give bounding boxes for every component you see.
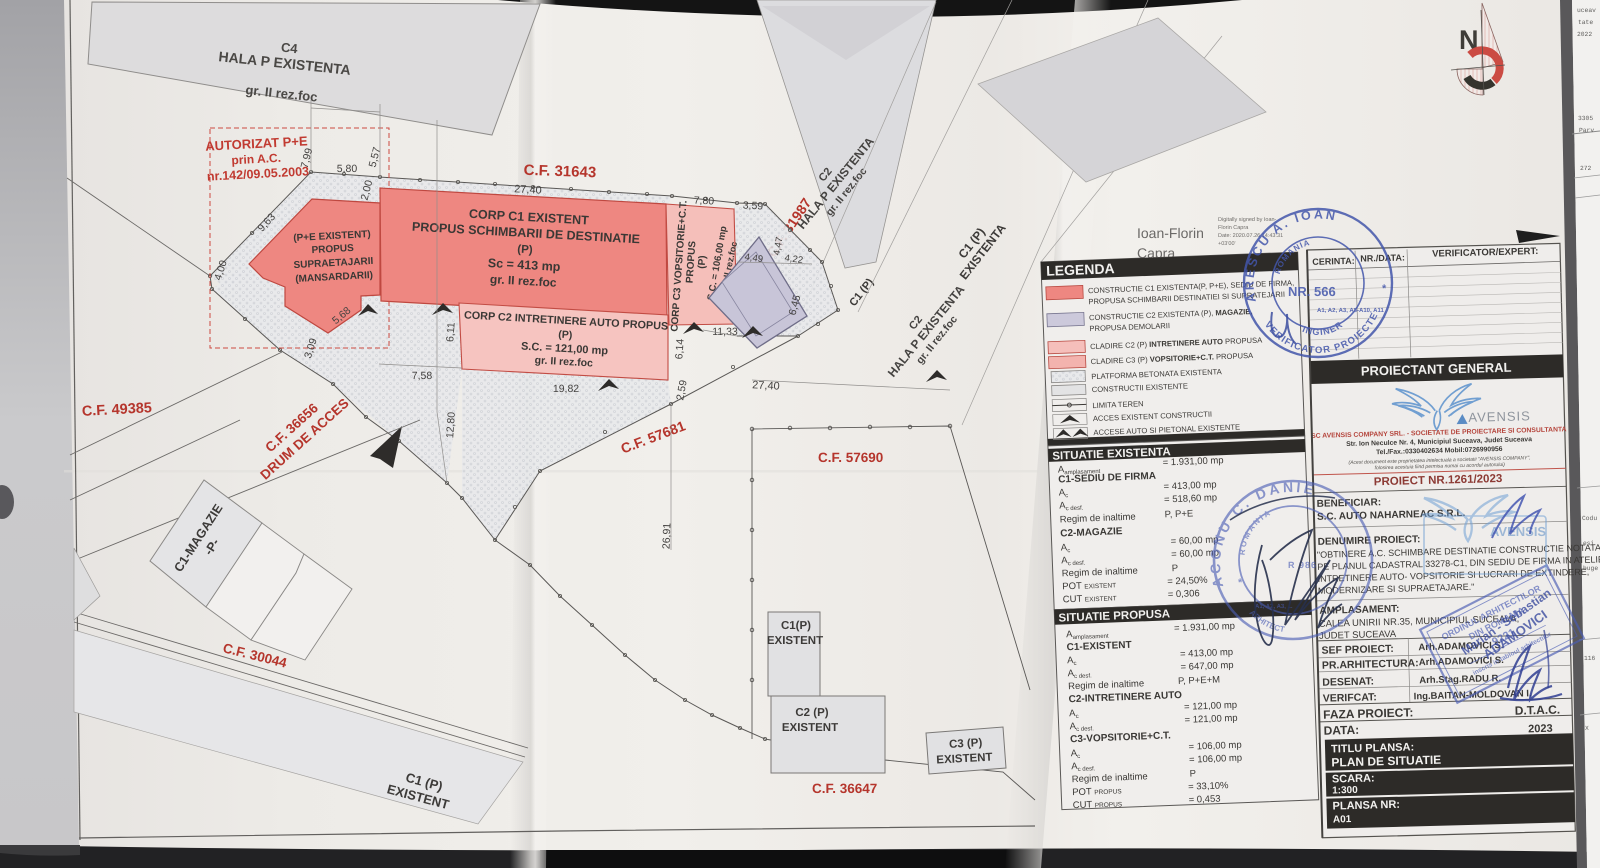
svg-text:= 413,00 mp: = 413,00 mp bbox=[1180, 647, 1233, 660]
svg-text:P: P bbox=[1172, 563, 1179, 574]
svg-text:A01: A01 bbox=[1333, 814, 1352, 825]
svg-text:C.F. 36647: C.F. 36647 bbox=[812, 781, 877, 796]
svg-text:(P): (P) bbox=[558, 329, 573, 342]
svg-text:*: * bbox=[1382, 283, 1387, 295]
svg-text:5,80: 5,80 bbox=[337, 163, 358, 175]
svg-text:PLAN DE SITUATIE: PLAN DE SITUATIE bbox=[1331, 753, 1441, 770]
svg-text:*: * bbox=[1238, 577, 1243, 589]
svg-text:EXISTENT: EXISTENT bbox=[767, 635, 823, 647]
svg-text:= 24,50%: = 24,50% bbox=[1167, 575, 1208, 588]
svg-text:7,80: 7,80 bbox=[693, 194, 714, 207]
svg-text:272: 272 bbox=[1580, 165, 1592, 172]
svg-text:7,58: 7,58 bbox=[412, 370, 433, 382]
svg-text:C3 (P): C3 (P) bbox=[949, 737, 983, 751]
svg-text:12,80: 12,80 bbox=[444, 411, 458, 438]
svg-text:1:300: 1:300 bbox=[1332, 785, 1358, 797]
svg-text:6,11: 6,11 bbox=[444, 322, 457, 343]
svg-text:DESENAT:: DESENAT: bbox=[1322, 675, 1374, 688]
svg-text:= 413,00 mp: = 413,00 mp bbox=[1163, 479, 1216, 492]
svg-text:AMPLASAMENT:: AMPLASAMENT: bbox=[1319, 604, 1399, 617]
svg-text:(P): (P) bbox=[517, 244, 533, 257]
svg-text:= 0,453: = 0,453 bbox=[1188, 794, 1220, 806]
svg-text:tate: tate bbox=[1578, 19, 1593, 26]
svg-text:27,40: 27,40 bbox=[514, 183, 542, 196]
svg-text:= 121,00 mp: = 121,00 mp bbox=[1184, 700, 1237, 713]
svg-text:SEF PROIECT:: SEF PROIECT: bbox=[1321, 643, 1394, 657]
svg-text:AVENSIS: AVENSIS bbox=[1468, 408, 1531, 425]
svg-text:= 106,00 mp: = 106,00 mp bbox=[1188, 740, 1241, 753]
svg-text:(P): (P) bbox=[697, 255, 709, 269]
svg-text:C1(P): C1(P) bbox=[781, 620, 811, 632]
svg-text:A1, A2, A3, A8-A10, A11: A1, A2, A3, A8-A10, A11 bbox=[1317, 307, 1384, 314]
svg-text:PLANSA NR:: PLANSA NR: bbox=[1332, 799, 1400, 813]
svg-text:A1, A2, A3, ...: A1, A2, A3, ... bbox=[1255, 603, 1293, 610]
svg-text:NR. 566: NR. 566 bbox=[1288, 284, 1336, 299]
svg-text:CERINTA:: CERINTA: bbox=[1312, 256, 1355, 267]
svg-text:= 121,00 mp: = 121,00 mp bbox=[1184, 713, 1237, 726]
svg-text:C.F. 31643: C.F. 31643 bbox=[523, 162, 596, 182]
svg-text:DATA:: DATA: bbox=[1323, 723, 1359, 738]
svg-text:P: P bbox=[1189, 768, 1196, 779]
svg-text:Parv: Parv bbox=[1579, 127, 1594, 134]
svg-text:VERIFCAT:: VERIFCAT: bbox=[1323, 691, 1377, 704]
svg-text:C4: C4 bbox=[280, 40, 299, 57]
svg-text:2022: 2022 bbox=[1577, 31, 1592, 38]
svg-text:= 1.931,00 mp: = 1.931,00 mp bbox=[1162, 455, 1223, 468]
svg-text:C2 (P): C2 (P) bbox=[795, 707, 828, 719]
svg-text:2023: 2023 bbox=[1528, 723, 1553, 736]
svg-text:= 106,00 mp: = 106,00 mp bbox=[1189, 753, 1242, 766]
svg-text:X: X bbox=[1585, 725, 1589, 732]
svg-text:NR./DATA:: NR./DATA: bbox=[1360, 252, 1405, 263]
svg-text:EXISTENT: EXISTENT bbox=[782, 722, 838, 734]
svg-text:SCARA:: SCARA: bbox=[1332, 772, 1375, 785]
svg-text:+03'00': +03'00' bbox=[1218, 241, 1236, 247]
svg-text:C.F. 57690: C.F. 57690 bbox=[818, 450, 883, 465]
svg-text:26,91: 26,91 bbox=[661, 523, 674, 550]
svg-text:Digitally signed by Ioan-: Digitally signed by Ioan- bbox=[1218, 217, 1277, 223]
svg-text:PROPUS: PROPUS bbox=[311, 243, 354, 256]
svg-text:3305: 3305 bbox=[1578, 115, 1593, 122]
svg-text:19,82: 19,82 bbox=[553, 383, 579, 395]
svg-text:P, P+E+M: P, P+E+M bbox=[1178, 674, 1221, 687]
svg-text:R 986: R 986 bbox=[1288, 560, 1317, 570]
svg-text:= 647,00 mp: = 647,00 mp bbox=[1180, 660, 1233, 673]
svg-text:Ioan-Florin: Ioan-Florin bbox=[1137, 225, 1204, 241]
svg-text:= 1.931,00 mp: = 1.931,00 mp bbox=[1174, 621, 1235, 634]
svg-text:Florin Capra: Florin Capra bbox=[1218, 225, 1249, 231]
svg-text:= 33,10%: = 33,10% bbox=[1188, 780, 1229, 793]
svg-text:uceav: uceav bbox=[1577, 7, 1596, 14]
svg-text:LEGENDA: LEGENDA bbox=[1046, 260, 1115, 279]
svg-text:Codu: Codu bbox=[1582, 515, 1597, 522]
svg-text:prin A.C.: prin A.C. bbox=[231, 151, 281, 168]
svg-text:= 0,306: = 0,306 bbox=[1168, 588, 1200, 600]
svg-text:P, P+E: P, P+E bbox=[1164, 508, 1193, 520]
svg-text:= 518,60 mp: = 518,60 mp bbox=[1164, 492, 1217, 505]
svg-text:3,59: 3,59 bbox=[742, 199, 763, 212]
svg-text:116: 116 bbox=[1584, 655, 1596, 662]
svg-text:6,14: 6,14 bbox=[673, 338, 686, 359]
